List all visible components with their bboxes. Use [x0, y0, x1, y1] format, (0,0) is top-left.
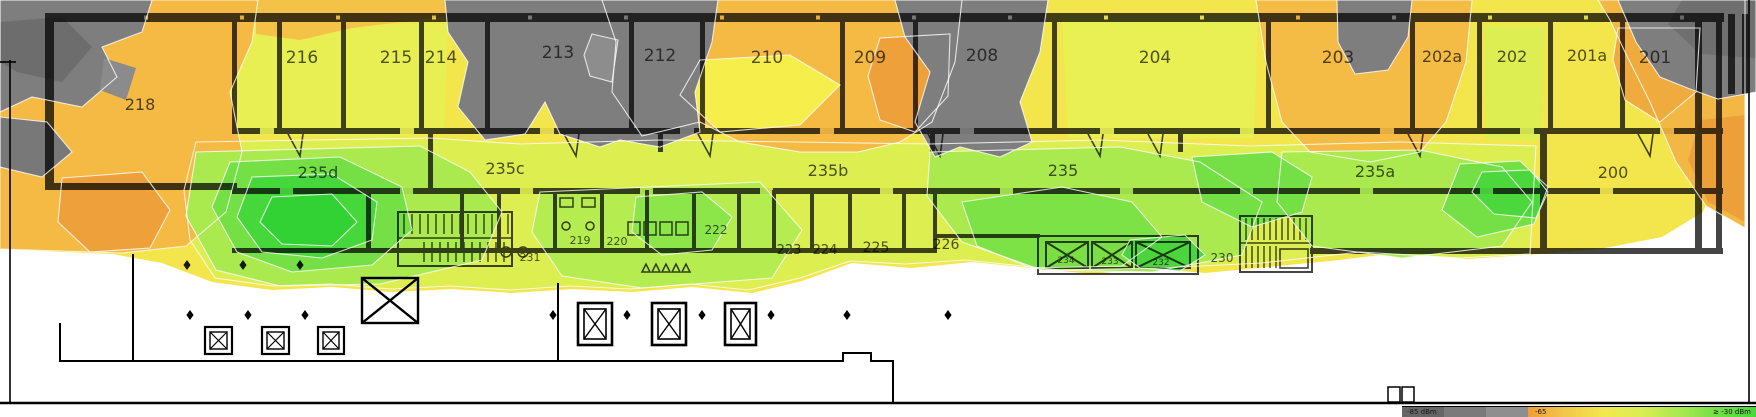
- survey-point-icon: [698, 310, 705, 320]
- column-marker-icon: [578, 303, 756, 345]
- signal-legend: -85 dBm -65 ≥ -30 dBm: [1402, 406, 1756, 417]
- survey-point-icon: [767, 310, 774, 320]
- survey-point-icon: [623, 310, 630, 320]
- survey-point-icon: [944, 310, 951, 320]
- room-label-234: 234: [1057, 256, 1074, 266]
- room-label-202: 202: [1497, 47, 1528, 66]
- room-label-210: 210: [751, 48, 783, 68]
- survey-point-icon: [186, 310, 193, 320]
- room-label-219: 219: [570, 234, 591, 247]
- legend-gray-step: [1486, 407, 1528, 417]
- floorplan-heatmap: 216215214213212210209208204203202a202201…: [0, 0, 1756, 417]
- room-label-215: 215: [380, 48, 412, 68]
- legend-mid-label: -65: [1535, 408, 1546, 417]
- room-label-231: 231: [520, 251, 541, 264]
- room-label-209: 209: [854, 48, 886, 68]
- legend-min-label: -85 dBm: [1407, 408, 1437, 417]
- room-label-235c: 235c: [485, 159, 524, 178]
- room-label-214: 214: [425, 48, 457, 68]
- room-label-201a: 201a: [1567, 46, 1607, 65]
- room-label-223: 223: [777, 243, 802, 258]
- survey-point-icon: [244, 310, 251, 320]
- room-label-226: 226: [933, 237, 960, 253]
- room-label-235: 235: [1048, 161, 1079, 180]
- room-label-204: 204: [1139, 48, 1171, 68]
- room-label-212: 212: [644, 46, 676, 66]
- room-label-233: 233: [1101, 257, 1118, 267]
- survey-point-icon: [549, 310, 556, 320]
- room-label-208: 208: [966, 46, 998, 66]
- room-label-203: 203: [1322, 48, 1354, 68]
- survey-point-icon: [301, 310, 308, 320]
- legend-gray-step: [1444, 407, 1486, 417]
- room-label-235b: 235b: [808, 161, 849, 180]
- survey-point-icon: [186, 310, 951, 320]
- legend-max-label: ≥ -30 dBm: [1713, 408, 1751, 417]
- column-marker-icon: [205, 327, 344, 354]
- survey-canvas[interactable]: 216215214213212210209208204203202a202201…: [0, 0, 1756, 417]
- room-label-220: 220: [607, 235, 628, 248]
- room-label-225: 225: [863, 240, 890, 256]
- room-label-216: 216: [286, 48, 318, 68]
- room-label-202a: 202a: [1422, 47, 1462, 66]
- room-label-230: 230: [1211, 251, 1234, 265]
- room-label-200: 200: [1598, 163, 1629, 182]
- room-label-235a: 235a: [1355, 162, 1395, 181]
- survey-point-icon: [843, 310, 850, 320]
- room-label-224: 224: [813, 243, 838, 258]
- room-label-232: 232: [1152, 258, 1169, 268]
- room-label-201: 201: [1639, 48, 1671, 68]
- room-label-235d: 235d: [298, 163, 339, 182]
- room-label-218: 218: [125, 95, 156, 114]
- room-label-213: 213: [542, 43, 574, 63]
- room-label-222: 222: [705, 223, 728, 237]
